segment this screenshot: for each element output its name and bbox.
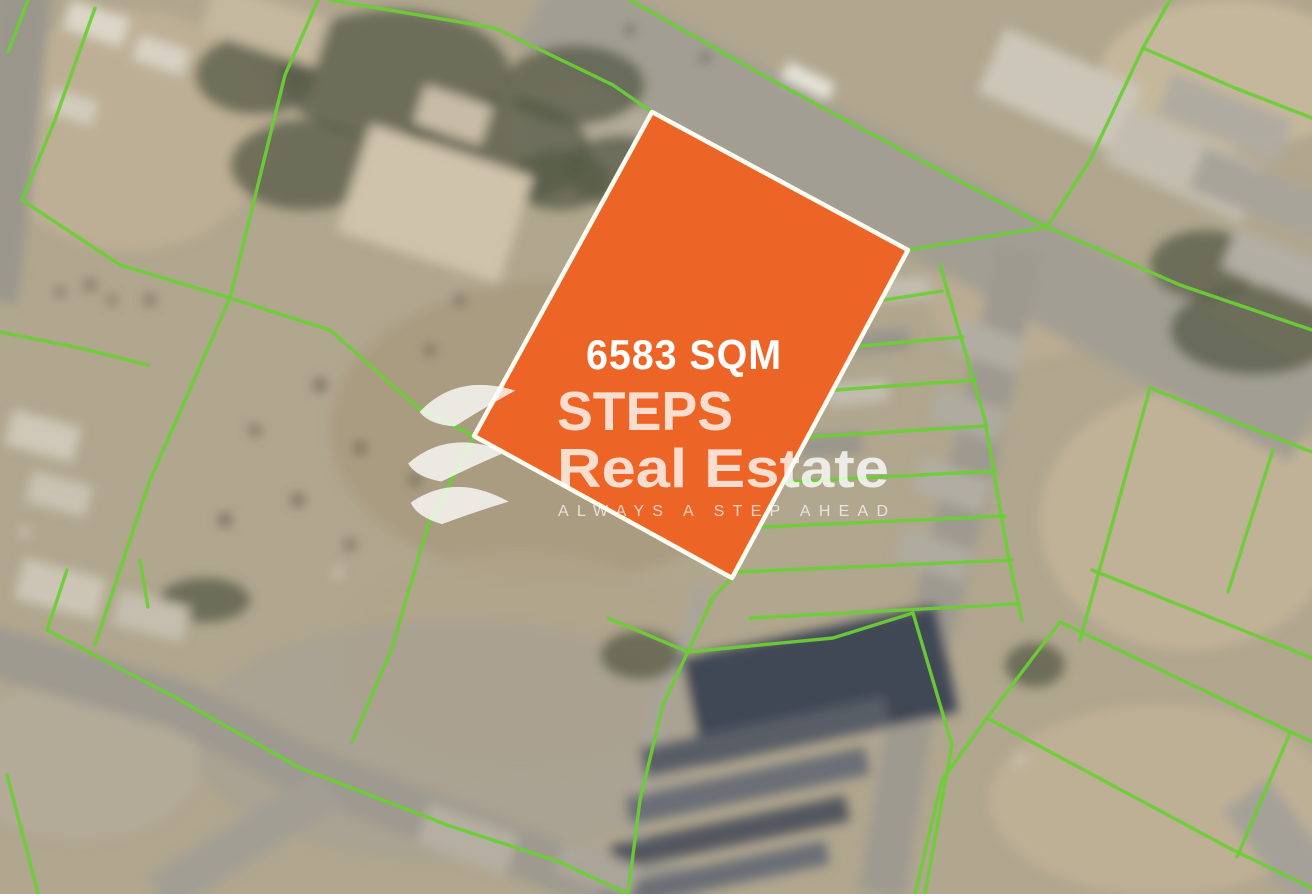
ground-dot: [700, 53, 710, 63]
ground-dot: [625, 25, 635, 35]
ground-dot: [454, 294, 466, 306]
ground-dot: [424, 344, 436, 356]
ground-dot: [84, 279, 96, 291]
ground-dot: [353, 441, 367, 455]
ground-dot: [144, 294, 156, 306]
ground-dot: [218, 513, 232, 527]
ground-dot: [313, 378, 327, 392]
brand-name-steps: STEPS: [557, 380, 733, 442]
map-svg: 6583 SQM STEPS Real Estate ALWAYS A STEP…: [0, 0, 1312, 894]
satellite-map-image: 6583 SQM STEPS Real Estate ALWAYS A STEP…: [0, 0, 1312, 894]
parcel-area-label: 6583 SQM: [586, 331, 782, 378]
brand-name-real-estate: Real Estate: [557, 437, 889, 499]
ground-dot: [291, 493, 305, 507]
ground-dot: [334, 569, 342, 577]
ground-dot: [107, 295, 117, 305]
ground-dot: [21, 528, 29, 536]
vegetation-patch: [505, 45, 645, 125]
ground-dot: [55, 287, 65, 297]
ground-dot: [1016, 756, 1024, 764]
vegetation-patch: [600, 630, 680, 680]
ground-dot: [408, 473, 422, 487]
ground-dot: [249, 424, 261, 436]
ground-dot: [344, 539, 356, 551]
